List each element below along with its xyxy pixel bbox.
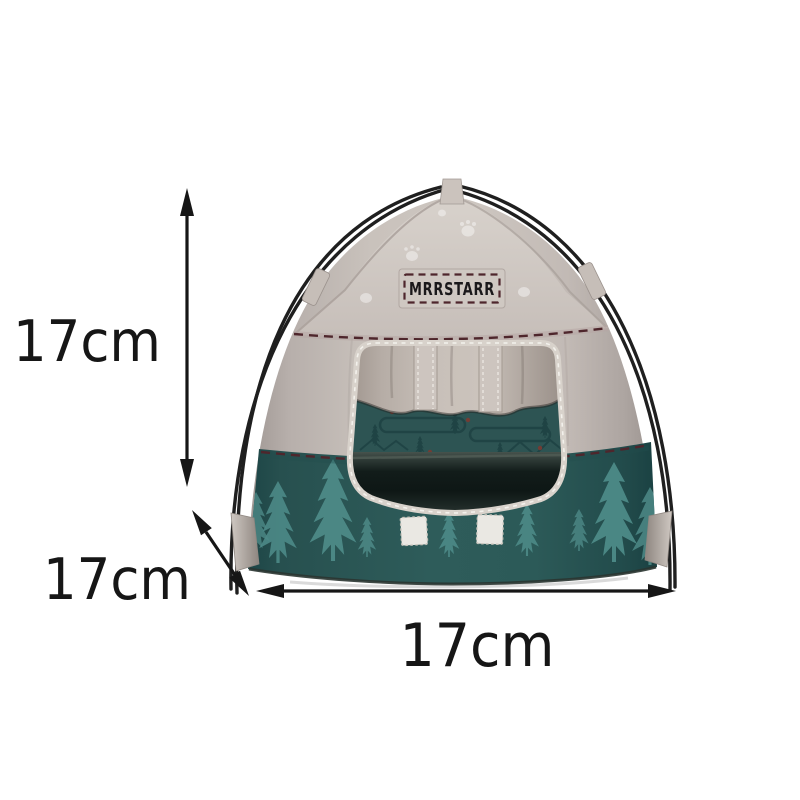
depth-dimension-label: 17cm bbox=[43, 547, 191, 613]
arrowhead-up-left bbox=[192, 510, 212, 535]
corner-tab-left bbox=[231, 513, 259, 571]
door-flap bbox=[350, 342, 564, 415]
brand-patch: MRRSTARR bbox=[399, 269, 505, 308]
arrowhead-left bbox=[256, 584, 284, 598]
brand-patch-label: MRRSTARR bbox=[409, 279, 495, 300]
corner-tab-right bbox=[645, 511, 672, 567]
door-flap-strap bbox=[414, 341, 437, 410]
tent-dimension-diagram: MRRSTARR bbox=[0, 0, 800, 800]
height-dimension-label: 17cm bbox=[13, 309, 161, 375]
velcro-tab bbox=[476, 515, 503, 545]
velcro-tab bbox=[400, 516, 427, 545]
width-dimension-label: 17cm bbox=[400, 611, 555, 681]
tent-illustration: MRRSTARR bbox=[231, 179, 675, 593]
arrowhead-up bbox=[180, 188, 194, 216]
product-dimension-image: MRRSTARR bbox=[0, 0, 800, 800]
height-dimension-arrow-icon bbox=[180, 188, 194, 487]
door-opening bbox=[345, 340, 573, 517]
arrowhead-down bbox=[180, 459, 194, 487]
peak-loop-tab bbox=[440, 179, 464, 204]
arrowhead-right bbox=[648, 584, 676, 598]
door-flap-strap bbox=[479, 341, 502, 412]
